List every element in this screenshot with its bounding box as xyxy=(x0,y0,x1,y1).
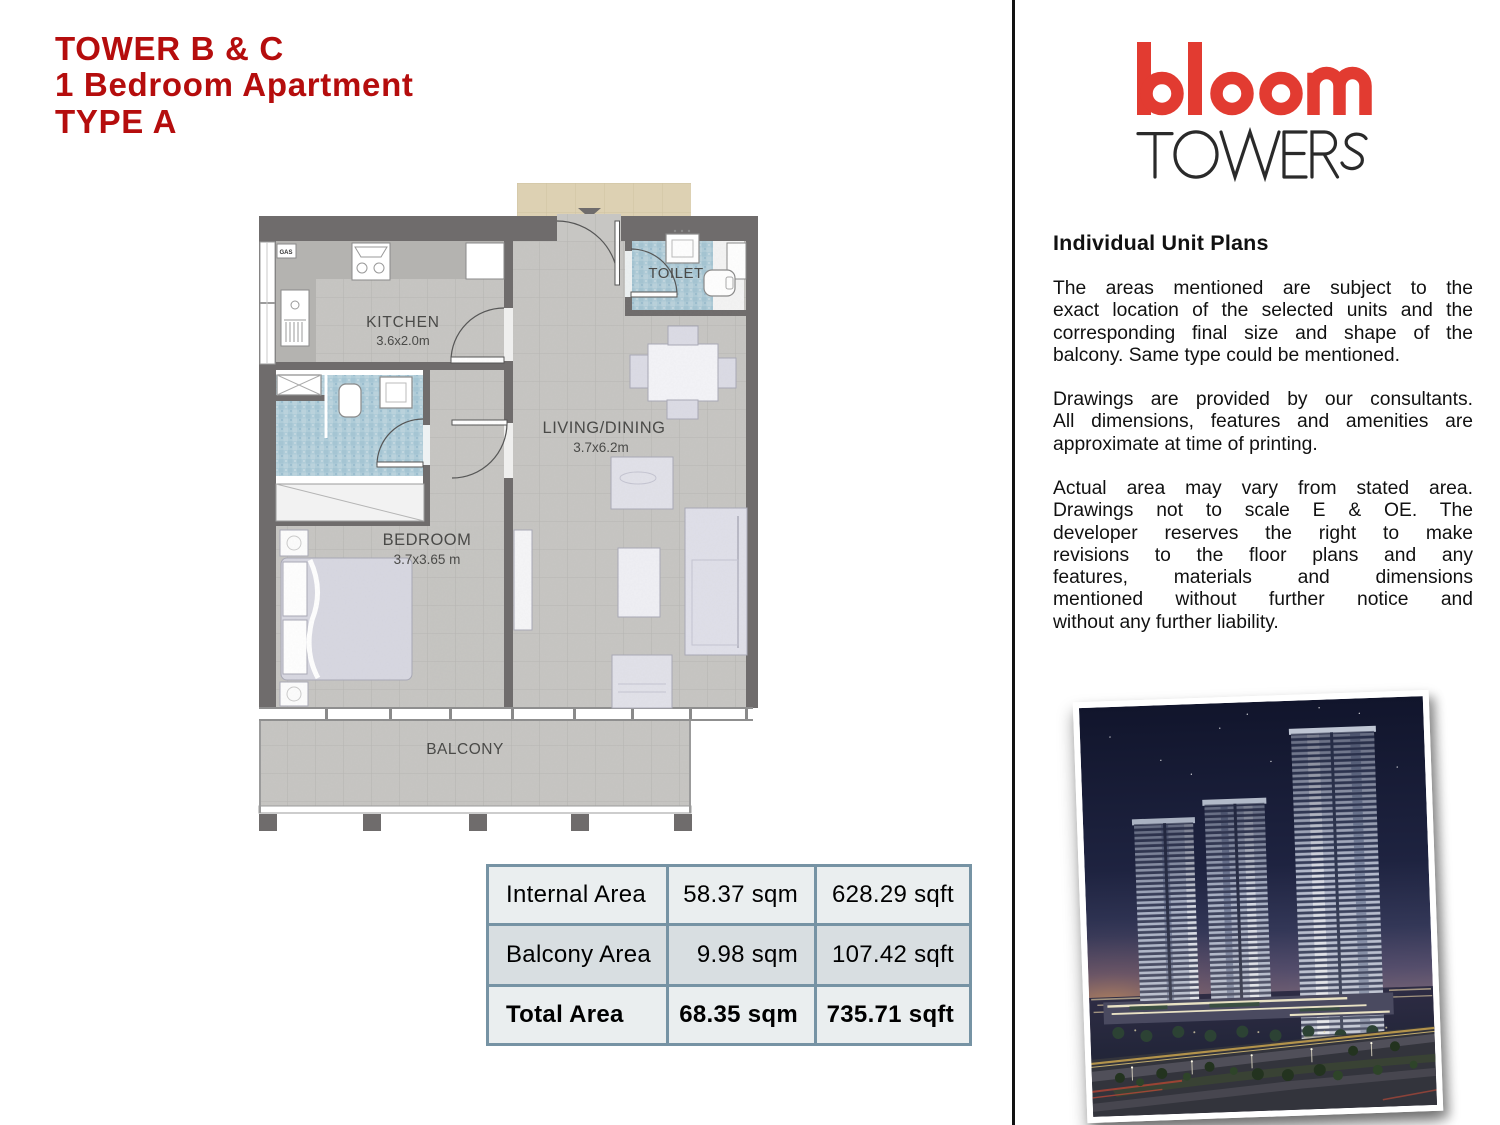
svg-text:BALCONY: BALCONY xyxy=(426,741,504,758)
svg-text:3.6x2.0m: 3.6x2.0m xyxy=(376,333,429,348)
svg-text:3.7x6.2m: 3.7x6.2m xyxy=(573,440,629,455)
svg-text:LIVING/DINING: LIVING/DINING xyxy=(543,419,666,437)
svg-text:GAS: GAS xyxy=(279,250,292,256)
svg-text:BEDROOM: BEDROOM xyxy=(383,531,472,549)
svg-text:KITCHEN: KITCHEN xyxy=(366,314,440,331)
svg-text:3.7x3.65 m: 3.7x3.65 m xyxy=(394,552,461,567)
svg-text:TOILET: TOILET xyxy=(648,265,703,282)
